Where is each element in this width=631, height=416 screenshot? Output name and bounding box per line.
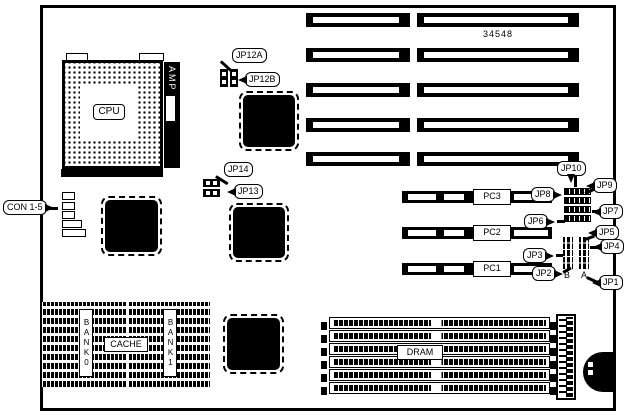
simm-socket — [329, 330, 550, 342]
jp3-callout-line — [556, 254, 563, 257]
con-connector — [62, 202, 75, 210]
bank0-label: BANK0 — [79, 309, 93, 377]
slot-key-segment — [408, 266, 436, 272]
jumper-column-b — [563, 237, 573, 270]
power-connector — [556, 314, 576, 400]
qfp-chip — [227, 318, 280, 370]
callout-tail — [546, 218, 555, 226]
isa-slot-segment — [306, 13, 410, 27]
jp9-callout: JP9 — [593, 178, 617, 193]
callout-tail — [593, 243, 602, 251]
qfp-chip — [243, 95, 295, 147]
jp3-callout: JP3 — [523, 248, 547, 263]
motherboard-diagram: CPU AMP CON 1-5 JP12A JP12B JP14 JP13 — [0, 0, 631, 416]
slot-key-segment — [514, 230, 548, 236]
jumper-column-a — [579, 237, 589, 270]
isa-slot-segment — [417, 152, 579, 166]
slot-key-segment — [408, 230, 436, 236]
jp12b-callout: JP12B — [245, 72, 280, 87]
jp14-callout: JP14 — [224, 162, 253, 177]
dram-label: DRAM — [397, 345, 443, 360]
slot-key-segment — [444, 194, 464, 200]
jp8-callout: JP8 — [531, 187, 555, 202]
din-pin — [588, 362, 593, 367]
jp10-callout: JP10 — [557, 161, 586, 176]
pci-slot-pc1: PC1 — [402, 263, 552, 275]
simm-clips-left — [321, 319, 327, 395]
callout-tail — [586, 182, 595, 190]
simm-socket — [329, 317, 550, 329]
amp-bar-notch — [166, 96, 175, 121]
jp1-label: JP1 — [603, 277, 619, 287]
con-connector — [62, 192, 75, 200]
jp14-label: JP14 — [228, 164, 249, 174]
jp12a-label: JP12A — [236, 50, 263, 60]
jp10-label: JP10 — [561, 163, 582, 173]
cache-label: CACHE — [104, 337, 148, 352]
jp5-label: JP5 — [599, 227, 615, 237]
qfp-chip — [105, 200, 158, 252]
jp7-callout: JP7 — [599, 204, 623, 219]
jp4-label: JP4 — [604, 241, 620, 251]
jumper-jp12a — [220, 69, 228, 87]
board-part-number: 34548 — [483, 29, 513, 39]
isa-slot-segment — [306, 83, 410, 97]
power-connector-pins — [567, 317, 573, 397]
power-connector-cells — [559, 317, 567, 397]
jp2-label: JP2 — [536, 268, 552, 278]
jp1-callout: JP1 — [599, 275, 623, 290]
con-connector — [62, 229, 86, 237]
isa-slot-segment — [417, 48, 579, 62]
isa-slot-segment — [417, 83, 579, 97]
simm-socket — [329, 382, 550, 394]
cpu-label: CPU — [93, 104, 125, 120]
simm-socket — [329, 369, 550, 381]
slot-key-segment — [408, 194, 436, 200]
slot-key-segment — [444, 230, 464, 236]
con-group-label: CON 1-5 — [7, 202, 43, 212]
jumper-jp14 — [203, 179, 220, 187]
callout-tail — [567, 174, 575, 183]
jp7-label: JP7 — [603, 206, 619, 216]
callout-tail — [592, 208, 601, 216]
callout-tail — [588, 229, 597, 237]
pc3-label: PC3 — [473, 189, 511, 205]
amp-connector-bar: AMP — [164, 62, 180, 168]
callout-tail — [238, 76, 247, 84]
din-pin — [588, 370, 593, 375]
jumper-strip-jp6 — [564, 215, 591, 222]
jp13-callout: JP13 — [234, 184, 263, 199]
callout-tail — [545, 252, 554, 260]
bank1-label: BANK1 — [163, 309, 177, 377]
callout-tail — [553, 191, 562, 199]
jumper-jp12b — [230, 69, 238, 87]
callout-tail — [592, 279, 601, 287]
jp6-label: JP6 — [528, 216, 544, 226]
callout-tail — [554, 270, 563, 278]
amp-brand-text: AMP — [167, 66, 177, 92]
con-connector — [62, 220, 82, 228]
pci-slot-pc3: PC3 — [402, 191, 552, 203]
jp5-callout: JP5 — [595, 225, 619, 240]
qfp-chip — [233, 207, 285, 258]
jp4-callout: JP4 — [600, 239, 624, 254]
jumper-strip-jp9 — [564, 197, 591, 204]
con-group-callout: CON 1-5 — [3, 200, 47, 215]
jp2-callout: JP2 — [532, 266, 556, 281]
jp3-label: JP3 — [527, 250, 543, 260]
jp12b-label: JP12B — [249, 74, 276, 84]
slot-key-segment — [444, 266, 464, 272]
isa-slot-segment — [306, 48, 410, 62]
jp12a-callout: JP12A — [232, 48, 267, 63]
jumper-strip-jp8-jp7 — [564, 206, 591, 213]
jp13-label: JP13 — [238, 186, 259, 196]
callout-tail — [45, 204, 54, 212]
jp6-callout-line — [557, 220, 565, 223]
pc1-label: PC1 — [473, 261, 511, 277]
con-connector — [62, 211, 75, 219]
jumper-jp13 — [203, 189, 220, 197]
socket-lever-bar — [70, 168, 163, 177]
jp8-label: JP8 — [535, 189, 551, 199]
pc2-label: PC2 — [473, 225, 511, 241]
isa-slot-segment — [306, 118, 410, 132]
jp9-label: JP9 — [597, 180, 613, 190]
isa-slot-segment — [306, 152, 410, 166]
callout-tail — [227, 188, 236, 196]
isa-slot-segment — [417, 118, 579, 132]
jp6-callout: JP6 — [524, 214, 548, 229]
isa-slot-segment — [417, 13, 579, 27]
